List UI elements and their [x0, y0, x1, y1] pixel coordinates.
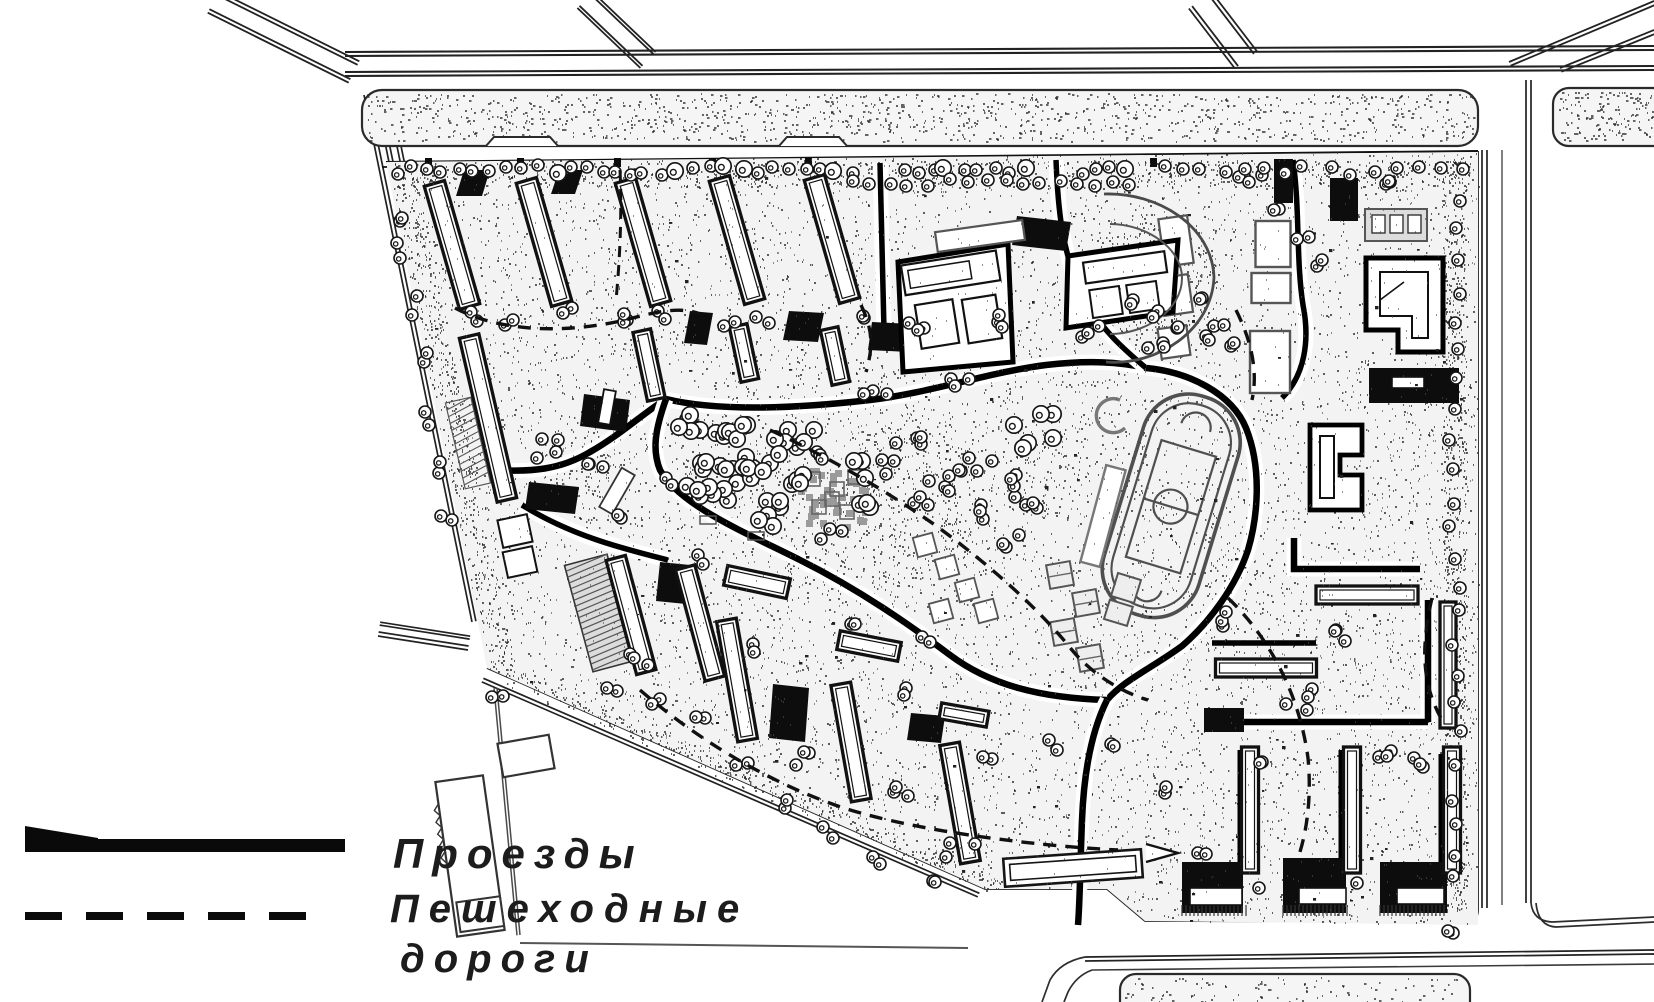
svg-text:дороги: дороги	[400, 937, 598, 981]
svg-text:Проезды: Проезды	[393, 830, 644, 877]
svg-text:Пешеходные: Пешеходные	[390, 887, 749, 931]
